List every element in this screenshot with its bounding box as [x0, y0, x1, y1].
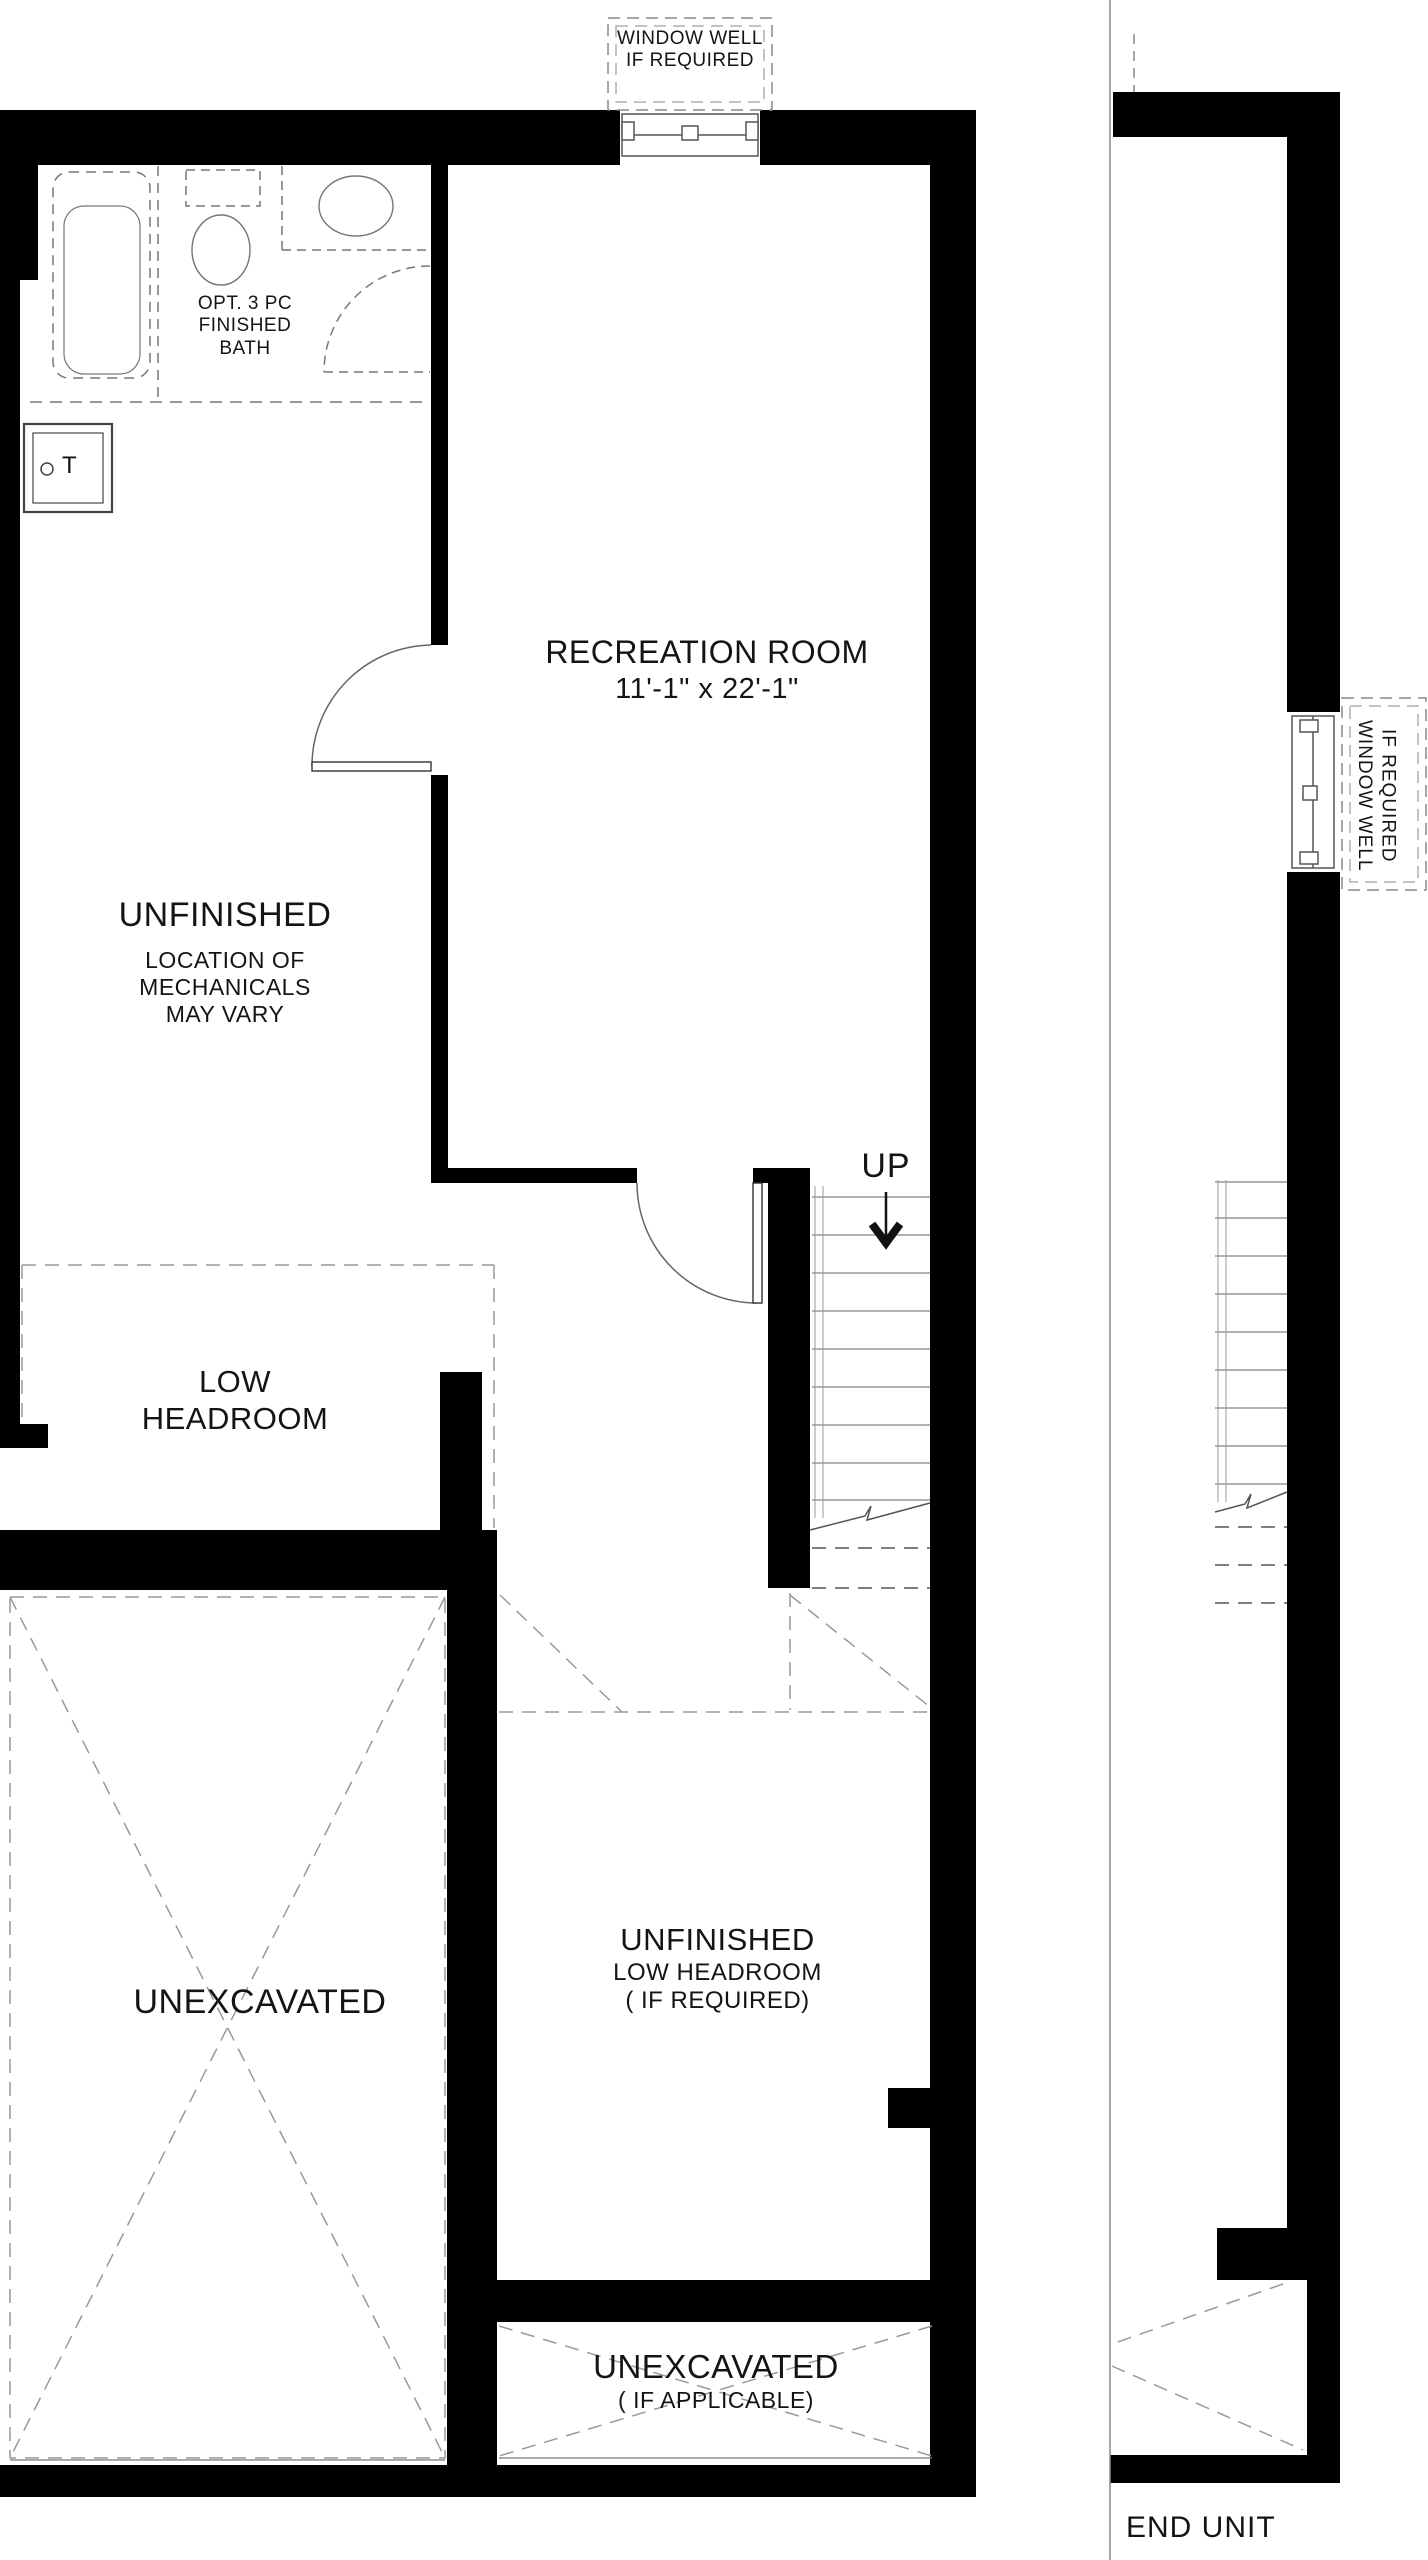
- adjacent-unit-walls: [1110, 92, 1340, 2483]
- rec-room-door-swing: [312, 645, 431, 766]
- unexcavated-x-mark: [1112, 2366, 1303, 2450]
- main-unit-walls: [0, 110, 976, 2497]
- bath-door-swing: [324, 266, 430, 372]
- dashed-regions: [10, 1265, 1303, 2458]
- bathtub-icon: [53, 172, 150, 378]
- unexcavated-left-label: UNEXCAVATED: [75, 1982, 445, 2022]
- stairs-up-label: UP: [850, 1146, 922, 1186]
- unexcavated-x-mark: [1112, 2284, 1283, 2344]
- unfinished-mechanical-label: UNFINISHED LOCATION OF MECHANICALS MAY V…: [60, 895, 390, 1028]
- side-window: [1287, 712, 1340, 872]
- end-unit-label: END UNIT: [1126, 2510, 1386, 2545]
- main-stairs: [810, 1186, 930, 1588]
- tank-label: T: [62, 452, 77, 480]
- unfinished-low-headroom-label: UNFINISHED LOW HEADROOM ( IF REQUIRED): [545, 1922, 890, 2015]
- adjacent-stairs: [1215, 1180, 1287, 1603]
- sink-icon: [319, 176, 393, 236]
- bathtub-basin-icon: [64, 206, 140, 374]
- rec-room-door-leaf: [312, 762, 431, 771]
- top-window-well-label: WINDOW WELL IF REQUIRED: [608, 28, 772, 73]
- bath-label: OPT. 3 PC FINISHED BATH: [160, 293, 330, 360]
- unexcavated-bottom-label: UNEXCAVATED ( IF APPLICABLE): [531, 2348, 901, 2414]
- top-window: [620, 110, 760, 165]
- stair-hall-door-swing: [637, 1183, 757, 1303]
- basement-floor-plan: WINDOW WELL IF REQUIRED OPT. 3 PC FINISH…: [0, 0, 1428, 2560]
- toilet-icon: [192, 215, 250, 285]
- bath-fixtures: [30, 166, 430, 402]
- vanity-icon: [186, 170, 260, 206]
- low-headroom-label: LOW HEADROOM: [70, 1364, 400, 1437]
- floor-plan-drawing: [0, 0, 1428, 2560]
- stair-hall-door-leaf: [753, 1183, 762, 1303]
- property-line: [1110, 0, 1134, 2560]
- right-window-well-label: WINDOW WELL IF REQUIRED: [1352, 706, 1400, 886]
- recreation-room-label: RECREATION ROOM 11'-1" x 22'-1": [517, 634, 897, 706]
